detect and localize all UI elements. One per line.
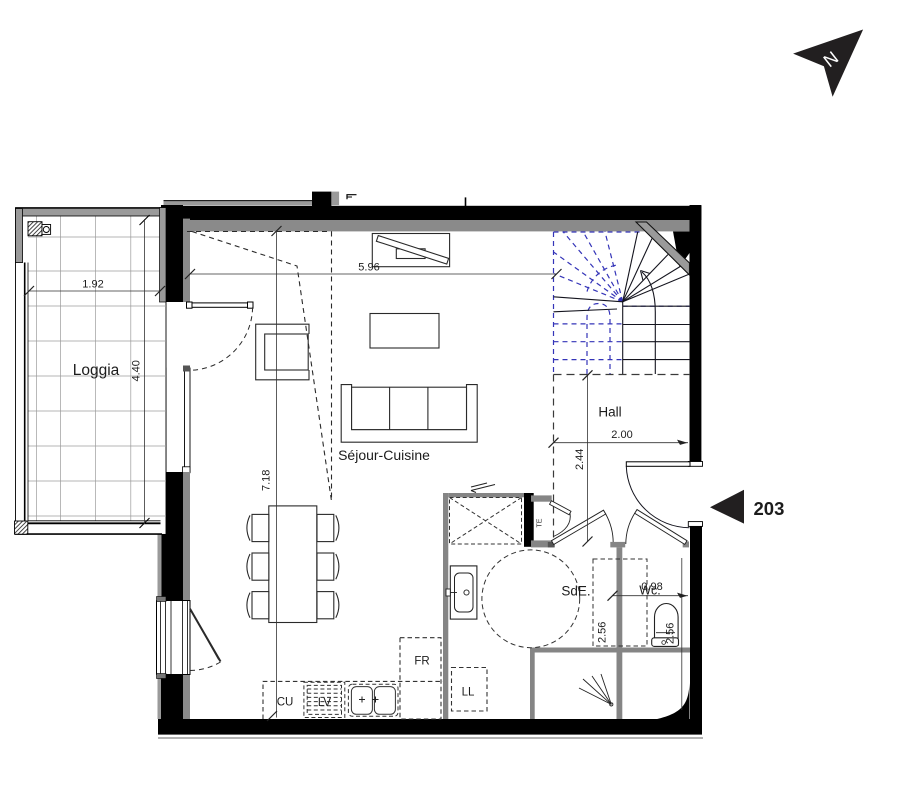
svg-text:2.00: 2.00 xyxy=(611,429,632,441)
svg-text:SdE.: SdE. xyxy=(561,584,590,599)
svg-text:2.44: 2.44 xyxy=(574,449,586,470)
svg-text:2.56: 2.56 xyxy=(665,623,677,644)
svg-text:1.92: 1.92 xyxy=(82,279,103,291)
svg-text:TE: TE xyxy=(537,518,544,527)
svg-text:Hall: Hall xyxy=(598,405,621,420)
svg-text:Wc.: Wc. xyxy=(639,584,661,598)
svg-text:Séjour-Cuisine: Séjour-Cuisine xyxy=(338,447,430,463)
svg-text:LL: LL xyxy=(462,687,475,699)
svg-text:5.96: 5.96 xyxy=(358,262,379,274)
svg-text:Loggia: Loggia xyxy=(73,362,120,379)
svg-text:7.18: 7.18 xyxy=(261,470,273,491)
svg-text:2.56: 2.56 xyxy=(597,622,609,643)
svg-text:FR: FR xyxy=(414,656,429,668)
svg-text:CU: CU xyxy=(277,697,294,709)
svg-text:4.40: 4.40 xyxy=(131,360,143,381)
svg-text:LV: LV xyxy=(318,697,332,709)
svg-text:203: 203 xyxy=(754,498,785,519)
